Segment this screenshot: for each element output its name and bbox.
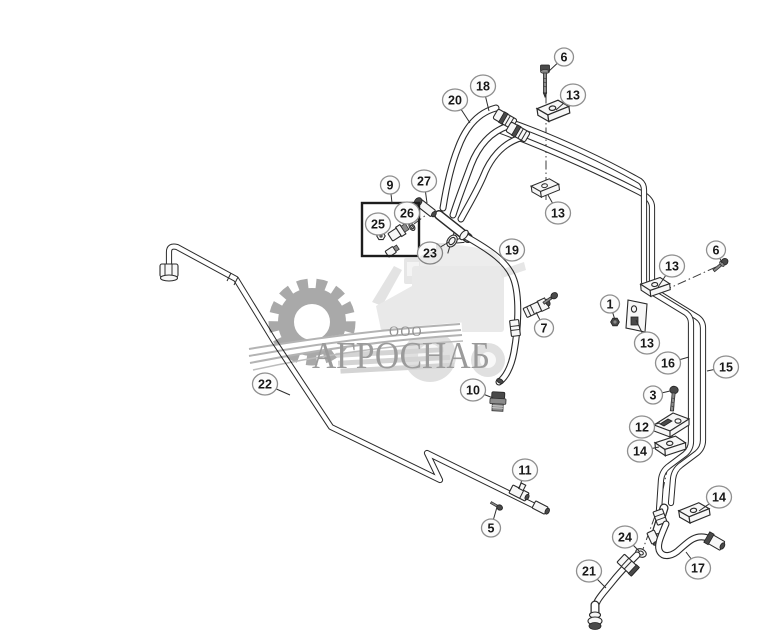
callout-19: 19	[500, 239, 525, 261]
elbow-nut	[588, 612, 602, 630]
svg-text:6: 6	[713, 243, 720, 257]
svg-text:3: 3	[650, 388, 657, 402]
callout-24: 24	[613, 526, 638, 548]
svg-text:26: 26	[400, 206, 414, 220]
callout-15: 15	[714, 356, 739, 378]
svg-text:25: 25	[371, 217, 385, 231]
callout-14: 14	[707, 486, 732, 508]
svg-text:5: 5	[488, 521, 495, 535]
diagram-canvas: 6181320927132526231961311371615223101214…	[0, 0, 781, 641]
callout-12: 12	[630, 416, 655, 438]
svg-text:20: 20	[448, 93, 462, 107]
svg-text:6: 6	[561, 50, 568, 64]
svg-text:12: 12	[635, 420, 649, 434]
bracket-13	[626, 300, 647, 332]
plug-10	[489, 392, 506, 412]
callout-3: 3	[644, 386, 663, 404]
callout-27: 27	[412, 170, 437, 192]
fitting-7	[523, 291, 559, 318]
svg-text:27: 27	[417, 174, 431, 188]
svg-text:15: 15	[719, 360, 733, 374]
callout-14: 14	[628, 440, 653, 462]
callout-13: 13	[660, 255, 685, 277]
callout-7: 7	[535, 319, 554, 337]
svg-text:22: 22	[258, 377, 272, 391]
svg-text:7: 7	[541, 321, 548, 335]
callout-6: 6	[555, 48, 574, 66]
callout-20: 20	[443, 89, 468, 111]
svg-text:13: 13	[566, 88, 580, 102]
callout-11: 11	[513, 459, 538, 481]
watermark-brand-text: АГРОСНАБ	[312, 335, 490, 377]
svg-text:18: 18	[476, 79, 490, 93]
callout-13: 13	[635, 332, 660, 354]
svg-text:14: 14	[633, 444, 647, 458]
bracket-12	[654, 413, 689, 437]
clamp-13	[531, 178, 561, 199]
elbow-fitting	[160, 264, 178, 281]
svg-text:10: 10	[466, 383, 480, 397]
callout-18: 18	[471, 75, 496, 97]
bolt-6-top	[541, 65, 550, 97]
svg-text:14: 14	[712, 490, 726, 504]
callout-22: 22	[253, 373, 278, 395]
svg-text:16: 16	[661, 356, 675, 370]
line-end-fitting	[532, 501, 551, 516]
callout-21: 21	[577, 560, 602, 582]
callout-13: 13	[561, 84, 586, 106]
svg-text:13: 13	[665, 259, 679, 273]
callout-26: 26	[395, 202, 420, 224]
bolt-3	[668, 386, 679, 412]
callout-25: 25	[366, 213, 391, 235]
callout-6: 6	[707, 241, 726, 259]
callout-16: 16	[656, 352, 681, 374]
svg-text:11: 11	[518, 463, 531, 477]
svg-text:13: 13	[640, 336, 654, 350]
parts-diagram: 6181320927132526231961311371615223101214…	[0, 0, 781, 641]
callout-1: 1	[601, 295, 620, 313]
svg-text:19: 19	[505, 243, 519, 257]
svg-text:1: 1	[607, 297, 614, 311]
callout-9: 9	[381, 176, 400, 194]
clamp-14	[678, 501, 711, 524]
svg-text:13: 13	[551, 206, 565, 220]
callout-5: 5	[482, 519, 501, 537]
svg-text:21: 21	[582, 564, 596, 578]
hose-17	[659, 524, 728, 556]
svg-text:17: 17	[691, 561, 705, 575]
callout-10: 10	[461, 379, 486, 401]
callout-13: 13	[546, 202, 571, 224]
svg-text:24: 24	[618, 530, 632, 544]
svg-text:9: 9	[387, 178, 394, 192]
callout-17: 17	[686, 557, 711, 579]
